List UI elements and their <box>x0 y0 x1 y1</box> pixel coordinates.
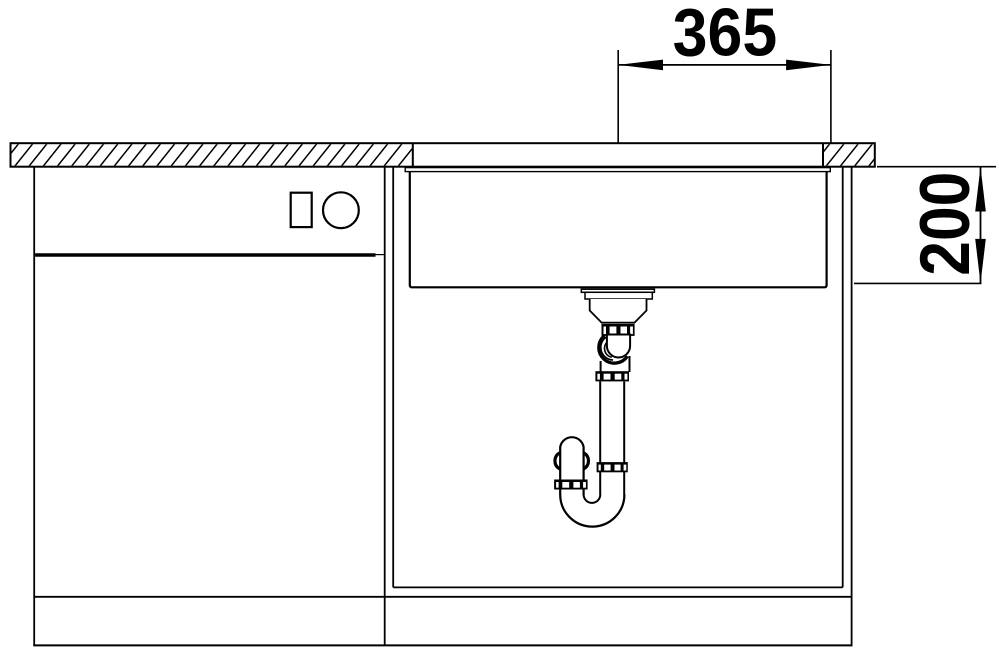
svg-text:200: 200 <box>907 172 985 276</box>
svg-text:365: 365 <box>673 0 777 70</box>
